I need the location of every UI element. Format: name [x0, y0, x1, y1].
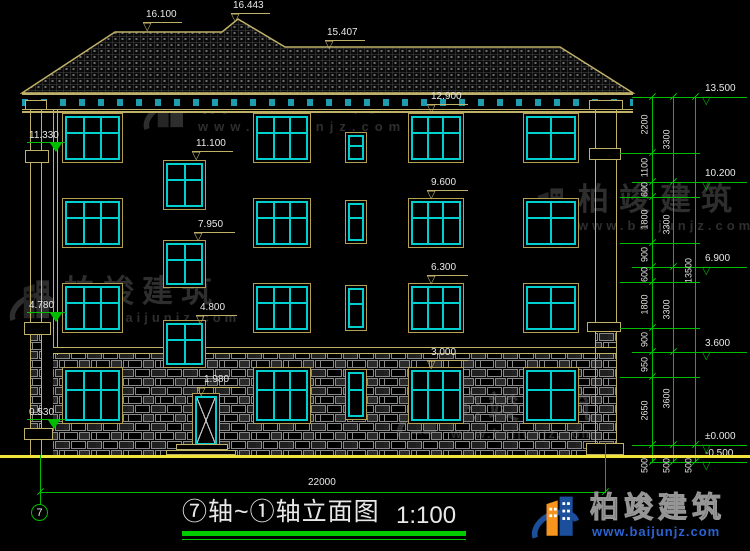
floor-band — [53, 347, 617, 354]
pilaster-right — [595, 108, 617, 455]
dim-text: 3600 — [663, 378, 672, 418]
elevation-annotation: 1.980 — [204, 375, 229, 385]
pilaster-left-molding — [25, 150, 49, 163]
axis-extension-right — [605, 443, 606, 493]
level-marker-line — [27, 419, 66, 420]
stone-texture-layer — [0, 0, 750, 551]
window — [408, 367, 464, 424]
window — [163, 160, 206, 210]
level-value: 0.530 — [29, 408, 54, 418]
dim-text: 3300 — [663, 119, 672, 159]
level-value: 11.330 — [29, 131, 59, 141]
elevation-annotation: 16.443 — [233, 1, 264, 11]
dim-tick-line — [620, 153, 700, 154]
level-value: 10.200 — [705, 169, 736, 179]
window — [523, 367, 579, 424]
window — [408, 283, 464, 333]
brand-logo — [526, 491, 582, 551]
dim-tick-line — [620, 197, 700, 198]
window — [253, 113, 311, 163]
annotation-arrow-icon: ▽ — [427, 104, 435, 115]
level-marker-icon — [48, 420, 60, 429]
annotation-arrow-icon: ▽ — [143, 22, 151, 33]
elevation-annotation: 4.800 — [200, 303, 225, 313]
brand-name: 柏竣建筑 — [590, 492, 726, 524]
ground-line — [0, 455, 750, 458]
window — [62, 283, 123, 333]
window — [253, 198, 311, 248]
rafter-tails — [22, 99, 633, 106]
dim-line-vertical — [695, 97, 696, 462]
window — [62, 198, 123, 248]
window — [253, 283, 311, 333]
elevation-annotation: 6.300 — [431, 263, 456, 273]
level-marker-icon: ▽ — [702, 96, 710, 107]
window — [523, 198, 579, 248]
dim-tick-line — [620, 377, 700, 378]
dim-text: 3300 — [663, 289, 672, 329]
level-line — [632, 97, 747, 98]
elevation-annotation: 9.600 — [431, 178, 456, 188]
window — [345, 132, 367, 163]
pilaster-right-molding — [587, 322, 621, 332]
window — [345, 285, 367, 331]
window — [62, 113, 123, 163]
window — [408, 113, 464, 163]
level-value: 4.780 — [29, 301, 54, 311]
window — [345, 369, 367, 420]
dim-tick-line — [620, 243, 700, 244]
elevation-annotation: 7.950 — [198, 220, 223, 230]
entry-door — [192, 393, 220, 448]
window — [163, 240, 206, 288]
annotation-arrow-icon: ▽ — [192, 151, 200, 162]
drawing-scale: 1:100 — [396, 502, 456, 530]
annotation-arrow-icon: ▽ — [427, 360, 435, 371]
window — [523, 283, 579, 333]
title-underline-thick — [182, 531, 466, 536]
axis-extension-left — [40, 455, 41, 505]
axis-bubble-7: 7 — [31, 504, 48, 521]
brand-logo-icon — [526, 537, 582, 551]
dim-text: 950 — [641, 344, 650, 384]
annotation-arrow-icon: ▽ — [231, 13, 239, 24]
title-underline-thin — [182, 539, 466, 540]
window — [163, 320, 206, 368]
dim-text: 3300 — [663, 204, 672, 244]
level-value: 6.900 — [705, 254, 730, 264]
elevation-annotation: 12.900 — [431, 92, 462, 102]
dim-text: 2650 — [641, 391, 650, 431]
dim-text: 500 — [641, 446, 650, 486]
dim-text: 500 — [663, 446, 672, 486]
annotation-arrow-icon: ▽ — [427, 275, 435, 286]
dim-line-vertical — [673, 97, 674, 462]
elevation-annotation: 16.100 — [146, 10, 177, 20]
annotation-arrow-icon: ▽ — [197, 387, 205, 398]
brand-url: www.baijunjz.com — [592, 524, 720, 539]
elevation-drawing-canvas: 柏竣建筑 www.baijunjz.com 柏竣建筑 www.baijunjz.… — [0, 0, 750, 551]
annotation-arrow-icon: ▽ — [194, 232, 202, 243]
level-marker-icon: ▽ — [702, 266, 710, 277]
window — [62, 367, 123, 424]
pilaster-right-capital — [589, 100, 623, 110]
elevation-annotation: 15.407 — [327, 28, 358, 38]
window — [523, 113, 579, 163]
dim-text: 13500 — [685, 251, 694, 291]
level-marker-icon — [50, 313, 62, 322]
annotation-arrow-icon: ▽ — [196, 315, 204, 326]
annotation-arrow-icon: ▽ — [427, 190, 435, 201]
pilaster-left-base — [24, 428, 53, 440]
level-marker-icon: ▽ — [702, 351, 710, 362]
dim-text: 500 — [685, 446, 694, 486]
window — [345, 200, 367, 244]
level-marker-icon: ▽ — [702, 181, 710, 192]
elevation-annotation: 3.000 — [431, 348, 456, 358]
dim-text: 1800 — [641, 285, 650, 325]
level-marker-icon: ▽ — [702, 461, 710, 472]
pilaster-left-capital — [25, 100, 47, 110]
pilaster-left-molding — [24, 322, 51, 335]
level-value: ±0.000 — [705, 432, 736, 442]
dim-tick-line — [620, 328, 700, 329]
total-dim-line — [40, 492, 606, 493]
eave-cornice-band — [22, 93, 633, 113]
window — [253, 367, 311, 424]
level-value: 13.500 — [705, 84, 736, 94]
level-value: 3.600 — [705, 339, 730, 349]
pilaster-right-molding — [589, 148, 621, 160]
dim-text: 1800 — [641, 200, 650, 240]
annotation-arrow-icon: ▽ — [325, 40, 333, 51]
drawing-title: ⑦轴~①轴立面图 — [182, 497, 380, 527]
window — [408, 198, 464, 248]
level-marker-icon — [50, 143, 62, 152]
elevation-annotation: 11.100 — [196, 139, 226, 149]
dim-text: 2200 — [641, 105, 650, 145]
total-width-dim: 22000 — [308, 478, 336, 488]
